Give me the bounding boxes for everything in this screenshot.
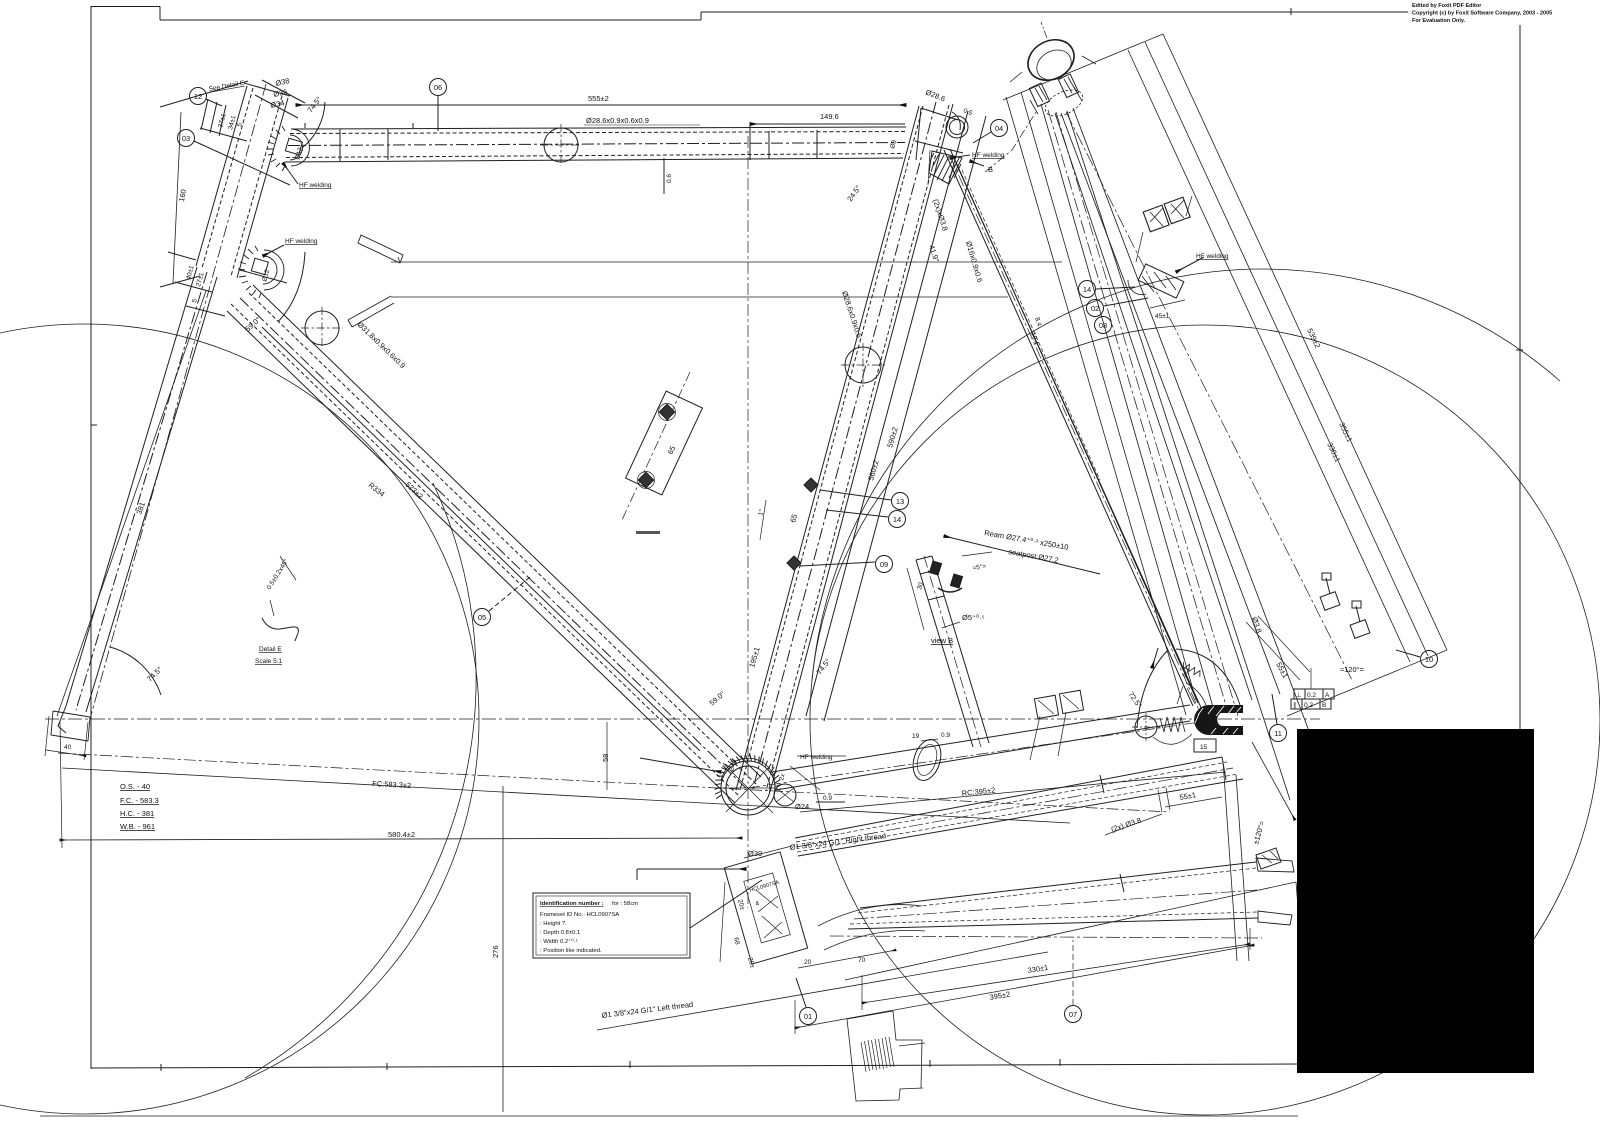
svg-text:Ø8: Ø8 xyxy=(889,139,898,150)
svg-text:±120°=: ±120°= xyxy=(1251,819,1266,845)
svg-text:Identification number :: Identification number : xyxy=(540,901,604,907)
svg-text:HCL0907SA: HCL0907SA xyxy=(749,880,780,894)
svg-text:HF welding: HF welding xyxy=(800,754,833,761)
svg-text:H.C. - 381: H.C. - 381 xyxy=(120,809,154,818)
svg-text:14: 14 xyxy=(893,515,901,524)
svg-text:59.0°: 59.0° xyxy=(708,689,727,707)
svg-text:See Detail E: See Detail E xyxy=(208,80,245,93)
svg-text:40: 40 xyxy=(64,744,72,751)
svg-text:55±1: 55±1 xyxy=(1274,661,1290,680)
svg-text:580.4±2: 580.4±2 xyxy=(388,830,415,839)
svg-text:19: 19 xyxy=(912,733,920,740)
svg-text:⊥: ⊥ xyxy=(1296,692,1302,699)
svg-text:Ø31.8x0.9x0.6x0.9: Ø31.8x0.9x0.6x0.9 xyxy=(356,320,408,370)
svg-text:0.2: 0.2 xyxy=(1304,702,1313,709)
svg-text:B: B xyxy=(988,165,993,174)
svg-text:0.9: 0.9 xyxy=(823,795,832,802)
svg-text:HF welding: HF welding xyxy=(972,152,1005,159)
svg-text:27±1: 27±1 xyxy=(195,271,206,287)
svg-text:11: 11 xyxy=(1274,729,1282,738)
svg-text:20±: 20± xyxy=(746,957,756,970)
svg-text:24.5°: 24.5° xyxy=(845,184,862,204)
svg-text:02: 02 xyxy=(1091,304,1099,313)
svg-text:Ø28.6x0.9x0.6x0.9: Ø28.6x0.9x0.6x0.9 xyxy=(586,116,649,125)
svg-text:: Position like indicated.: : Position like indicated. xyxy=(540,948,602,954)
svg-text:55±1: 55±1 xyxy=(1179,790,1197,802)
svg-text:195±1: 195±1 xyxy=(747,646,761,668)
svg-text:15: 15 xyxy=(1200,744,1208,751)
svg-text:≈120°=: ≈120°= xyxy=(1340,665,1365,674)
svg-text:20: 20 xyxy=(804,959,812,966)
svg-text:0.5±0.2x45°: 0.5±0.2x45° xyxy=(265,557,290,591)
svg-text:09: 09 xyxy=(880,560,888,569)
svg-text:276: 276 xyxy=(491,945,500,958)
svg-text:14: 14 xyxy=(1083,285,1091,294)
svg-text:65: 65 xyxy=(788,513,799,524)
svg-text:68: 68 xyxy=(732,937,741,946)
svg-text:Ø38: Ø38 xyxy=(275,76,291,88)
svg-text:149.6: 149.6 xyxy=(820,112,839,121)
svg-text:2x: 2x xyxy=(778,772,787,781)
svg-text:A: A xyxy=(1325,692,1330,699)
svg-text:555±2: 555±2 xyxy=(588,94,609,103)
svg-text:560±2: 560±2 xyxy=(866,459,880,481)
svg-text:355±1: 355±1 xyxy=(1337,421,1354,444)
svg-text:Ream Ø27.4⁺⁰·¹ x250±10: Ream Ø27.4⁺⁰·¹ x250±10 xyxy=(984,528,1070,552)
svg-text:70: 70 xyxy=(858,957,866,964)
svg-text:Ø3.8: Ø3.8 xyxy=(1250,616,1264,634)
svg-text:72.5°: 72.5° xyxy=(1126,690,1143,710)
svg-text:08: 08 xyxy=(1099,321,1107,330)
svg-text:: Height ?.: : Height ?. xyxy=(540,921,567,927)
svg-text:for : 58cm: for : 58cm xyxy=(612,901,638,907)
svg-text:04: 04 xyxy=(995,124,1003,133)
svg-text:160: 160 xyxy=(177,188,188,202)
svg-text:05: 05 xyxy=(478,613,486,622)
svg-text:20±: 20± xyxy=(736,899,746,912)
svg-text:07: 07 xyxy=(1069,1010,1077,1019)
svg-text:12: 12 xyxy=(194,92,202,101)
svg-text:30: 30 xyxy=(916,581,925,590)
svg-text:Copyright (c) by Foxit Softwar: Copyright (c) by Foxit Software Company,… xyxy=(1412,11,1552,17)
svg-text:B: B xyxy=(1322,702,1326,709)
svg-text:01: 01 xyxy=(804,1012,812,1021)
svg-text:330±1: 330±1 xyxy=(1325,441,1342,464)
svg-text:59.0°: 59.0° xyxy=(243,315,262,333)
svg-text:523±2: 523±2 xyxy=(404,480,425,501)
svg-text:Ø1 3/8"x24 G/1" Left thread: Ø1 3/8"x24 G/1" Left thread xyxy=(601,1000,693,1020)
svg-text:06: 06 xyxy=(434,83,442,92)
svg-text:74.5°: 74.5° xyxy=(814,657,832,676)
svg-text:Ø45: Ø45 xyxy=(728,758,738,772)
svg-text:≈5°=: ≈5°= xyxy=(972,562,987,572)
svg-text:Ø12: Ø12 xyxy=(294,146,304,160)
svg-text:0.2: 0.2 xyxy=(1307,692,1316,699)
svg-text:Ø5⁺⁰·⁵: Ø5⁺⁰·⁵ xyxy=(962,613,985,622)
svg-text:HF welding: HF welding xyxy=(285,238,318,245)
svg-text:RC:395±2: RC:395±2 xyxy=(961,786,995,798)
svg-text:0.9: 0.9 xyxy=(941,732,950,739)
svg-text:view B: view B xyxy=(931,636,953,645)
svg-text:0.5: 0.5 xyxy=(962,107,973,117)
svg-text:Scale 5:1: Scale 5:1 xyxy=(255,658,282,665)
svg-text:∥: ∥ xyxy=(1293,701,1296,709)
svg-text:37±1: 37±1 xyxy=(217,112,228,128)
svg-text:Ø12: Ø12 xyxy=(261,268,271,282)
svg-text:58: 58 xyxy=(601,754,610,762)
svg-text:: Depth 0.8±0.1: : Depth 0.8±0.1 xyxy=(540,930,580,936)
svg-text:45±1: 45±1 xyxy=(1155,313,1170,320)
svg-text:395±2: 395±2 xyxy=(989,989,1011,1001)
svg-text:13: 13 xyxy=(896,497,904,506)
svg-text:65: 65 xyxy=(666,444,678,455)
svg-text:(2x)xØ3.8: (2x)xØ3.8 xyxy=(931,198,950,232)
svg-text:330±1: 330±1 xyxy=(1027,963,1049,975)
svg-text:381: 381 xyxy=(134,501,147,516)
svg-text:Ø28.6: Ø28.6 xyxy=(924,88,946,104)
svg-text:R334: R334 xyxy=(367,480,387,498)
svg-text:41.9°: 41.9° xyxy=(927,244,941,264)
svg-text:: Width 0.2⁺⁰·¹: : Width 0.2⁺⁰·¹ xyxy=(540,938,578,945)
svg-text:8.4: 8.4 xyxy=(1033,316,1043,327)
svg-text:Edited by Foxit PDF Editor: Edited by Foxit PDF Editor xyxy=(1412,3,1482,9)
svg-text:10: 10 xyxy=(1425,655,1433,664)
svg-text:W.B. - 961: W.B. - 961 xyxy=(120,822,155,831)
svg-text:HF welding: HF welding xyxy=(299,182,332,189)
svg-text:F.C. - 583.3: F.C. - 583.3 xyxy=(120,796,159,805)
svg-text:4: 4 xyxy=(755,900,761,908)
svg-text:03: 03 xyxy=(182,134,190,143)
svg-text:For Evaluation Only.: For Evaluation Only. xyxy=(1412,18,1466,24)
svg-text:FC:583.3±2: FC:583.3±2 xyxy=(372,779,412,790)
svg-text:Detail E: Detail E xyxy=(259,646,282,653)
svg-text:0.6: 0.6 xyxy=(666,174,673,183)
svg-text:Ø24: Ø24 xyxy=(795,802,809,811)
svg-text:Frameset ID No.: HCL0907SA: Frameset ID No.: HCL0907SA xyxy=(540,912,619,918)
svg-text:O.S. - 40: O.S. - 40 xyxy=(120,782,150,791)
